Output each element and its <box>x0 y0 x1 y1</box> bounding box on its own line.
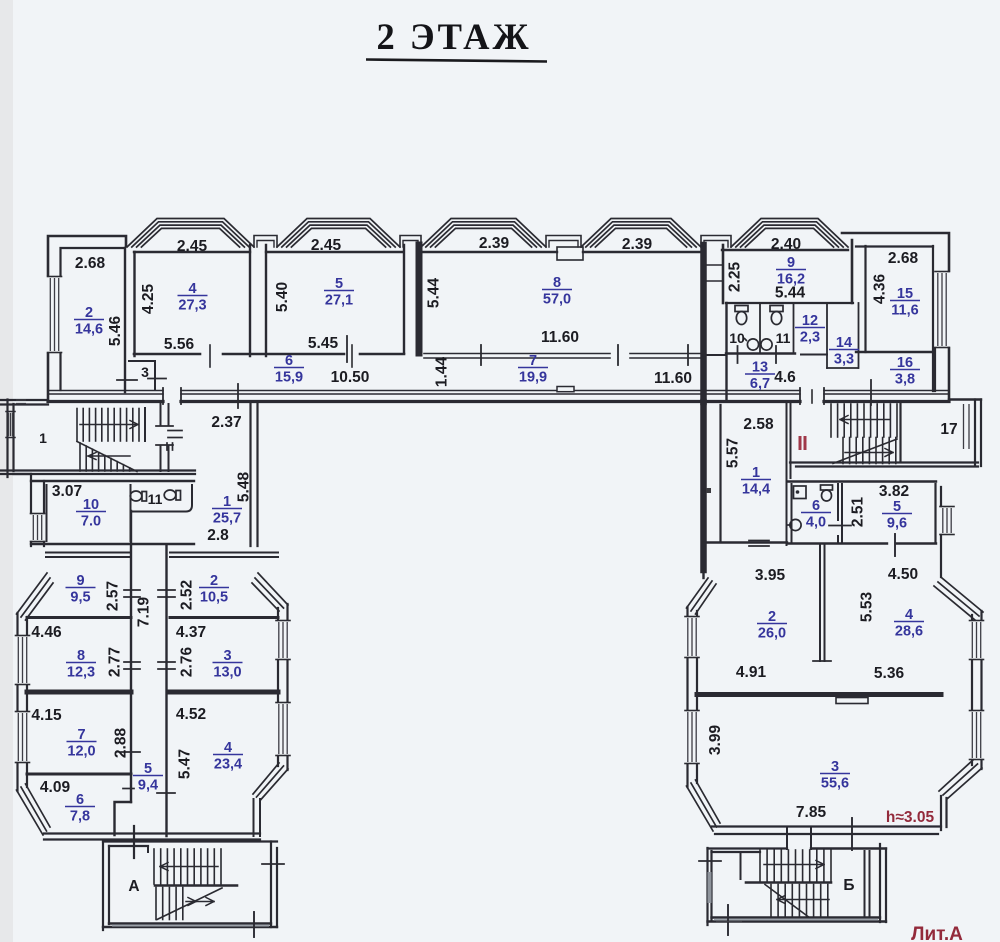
svg-text:10.50: 10.50 <box>331 369 370 386</box>
svg-text:11.60: 11.60 <box>654 370 692 387</box>
svg-text:3,8: 3,8 <box>895 372 915 388</box>
svg-text:3.95: 3.95 <box>755 567 786 584</box>
svg-text:5.46: 5.46 <box>107 316 124 347</box>
svg-text:55,6: 55,6 <box>821 776 849 792</box>
svg-text:3.82: 3.82 <box>879 483 909 500</box>
svg-text:3.07: 3.07 <box>52 483 82 500</box>
svg-text:11: 11 <box>148 491 163 507</box>
svg-text:4.50: 4.50 <box>888 566 918 583</box>
svg-text:4.52: 4.52 <box>176 706 206 723</box>
svg-text:8: 8 <box>553 275 561 291</box>
svg-text:12,0: 12,0 <box>67 744 95 760</box>
svg-text:Б: Б <box>843 877 854 894</box>
svg-text:1: 1 <box>752 465 760 481</box>
svg-text:7.85: 7.85 <box>796 804 827 821</box>
svg-text:2.25: 2.25 <box>727 262 744 293</box>
svg-text:11: 11 <box>776 330 791 346</box>
svg-text:5: 5 <box>144 761 152 777</box>
svg-text:2.68: 2.68 <box>888 250 919 267</box>
svg-text:4.09: 4.09 <box>40 779 71 796</box>
svg-text:4.25: 4.25 <box>140 284 157 315</box>
svg-text:4.15: 4.15 <box>31 707 62 724</box>
svg-text:4.91: 4.91 <box>736 664 767 681</box>
svg-text:16,2: 16,2 <box>777 272 805 288</box>
svg-text:h≈3.05: h≈3.05 <box>886 809 935 826</box>
svg-text:6: 6 <box>285 353 293 369</box>
svg-text:10,5: 10,5 <box>200 590 228 606</box>
svg-text:3: 3 <box>141 364 149 380</box>
svg-text:2.45: 2.45 <box>177 238 208 255</box>
svg-text:2.8: 2.8 <box>207 527 229 544</box>
svg-text:9,5: 9,5 <box>70 590 90 606</box>
svg-text:23,4: 23,4 <box>214 757 242 773</box>
svg-text:13,0: 13,0 <box>213 665 241 681</box>
svg-text:26,0: 26,0 <box>758 626 786 642</box>
svg-text:5.47: 5.47 <box>177 749 194 779</box>
svg-text:9: 9 <box>76 573 84 589</box>
svg-text:3.99: 3.99 <box>707 725 724 756</box>
svg-text:2.76: 2.76 <box>179 647 196 678</box>
svg-text:10: 10 <box>729 330 745 346</box>
svg-text:7,8: 7,8 <box>70 809 90 825</box>
svg-text:3: 3 <box>223 648 231 664</box>
svg-text:2.37: 2.37 <box>211 414 241 431</box>
svg-text:4: 4 <box>224 740 232 756</box>
svg-text:5.44: 5.44 <box>426 278 443 309</box>
svg-text:5.56: 5.56 <box>164 336 195 353</box>
svg-text:5: 5 <box>893 499 901 515</box>
svg-text:6: 6 <box>812 498 820 514</box>
svg-text:4.46: 4.46 <box>31 624 62 641</box>
svg-text:4: 4 <box>188 281 196 297</box>
svg-text:5.48: 5.48 <box>236 472 253 503</box>
svg-text:10: 10 <box>83 497 99 513</box>
svg-text:6,7: 6,7 <box>750 376 770 392</box>
svg-text:Лит.А: Лит.А <box>911 924 963 942</box>
svg-text:7.0: 7.0 <box>81 514 101 530</box>
svg-text:4.6: 4.6 <box>774 369 796 386</box>
svg-text:1: 1 <box>223 494 231 510</box>
svg-text:5.57: 5.57 <box>725 438 742 468</box>
svg-text:2.58: 2.58 <box>743 416 774 433</box>
svg-text:2,3: 2,3 <box>800 330 820 346</box>
svg-text:27,1: 27,1 <box>325 293 353 309</box>
svg-text:5: 5 <box>335 276 343 292</box>
svg-text:2.52: 2.52 <box>179 580 196 610</box>
svg-text:9,6: 9,6 <box>887 516 907 532</box>
svg-text:2.68: 2.68 <box>75 255 106 272</box>
svg-text:1: 1 <box>39 430 47 446</box>
svg-text:13: 13 <box>752 360 768 376</box>
svg-text:14,4: 14,4 <box>742 482 770 498</box>
svg-text:4.36: 4.36 <box>872 274 889 305</box>
svg-text:1.44: 1.44 <box>434 357 451 388</box>
svg-text:7: 7 <box>77 727 85 743</box>
svg-text:4,0: 4,0 <box>806 515 826 531</box>
svg-text:5.53: 5.53 <box>859 592 876 623</box>
svg-text:7.19: 7.19 <box>136 597 153 628</box>
svg-text:2.51: 2.51 <box>850 497 867 528</box>
svg-text:17: 17 <box>940 421 957 438</box>
svg-text:14: 14 <box>836 335 852 351</box>
svg-text:2.39: 2.39 <box>622 236 653 253</box>
svg-text:57,0: 57,0 <box>543 292 571 308</box>
svg-text:5.45: 5.45 <box>308 335 339 352</box>
svg-text:2.40: 2.40 <box>771 236 801 253</box>
svg-text:11,6: 11,6 <box>891 303 918 319</box>
svg-text:15,9: 15,9 <box>275 370 303 386</box>
svg-text:6: 6 <box>76 792 84 808</box>
svg-text:25,7: 25,7 <box>213 511 241 527</box>
svg-text:2.77: 2.77 <box>107 647 124 677</box>
svg-text:2.45: 2.45 <box>311 237 342 254</box>
svg-text:12: 12 <box>802 313 818 329</box>
svg-text:2 ЭТАЖ: 2 ЭТАЖ <box>376 16 531 57</box>
svg-text:2: 2 <box>210 573 218 589</box>
svg-text:3: 3 <box>831 759 839 775</box>
svg-text:16: 16 <box>897 355 913 371</box>
svg-text:5.40: 5.40 <box>274 282 291 312</box>
svg-text:А: А <box>128 878 139 895</box>
svg-text:4: 4 <box>905 607 913 623</box>
svg-text:28,6: 28,6 <box>895 624 923 640</box>
svg-text:2.57: 2.57 <box>105 581 122 611</box>
svg-text:12,3: 12,3 <box>67 665 95 681</box>
svg-text:14,6: 14,6 <box>75 322 103 338</box>
svg-text:9: 9 <box>787 255 795 271</box>
svg-text:5.36: 5.36 <box>874 665 905 682</box>
svg-text:8: 8 <box>77 648 85 664</box>
svg-text:19,9: 19,9 <box>519 370 547 386</box>
svg-text:2: 2 <box>768 609 776 625</box>
svg-text:2: 2 <box>85 305 93 321</box>
svg-text:4.37: 4.37 <box>176 624 206 641</box>
svg-text:7: 7 <box>529 353 537 369</box>
svg-text:2.88: 2.88 <box>113 728 130 759</box>
svg-text:3,3: 3,3 <box>834 352 854 368</box>
svg-text:11.60: 11.60 <box>541 329 579 346</box>
svg-text:2.39: 2.39 <box>479 235 510 252</box>
svg-text:27,3: 27,3 <box>178 298 206 314</box>
svg-text:9,4: 9,4 <box>138 778 158 794</box>
svg-text:15: 15 <box>897 286 913 302</box>
